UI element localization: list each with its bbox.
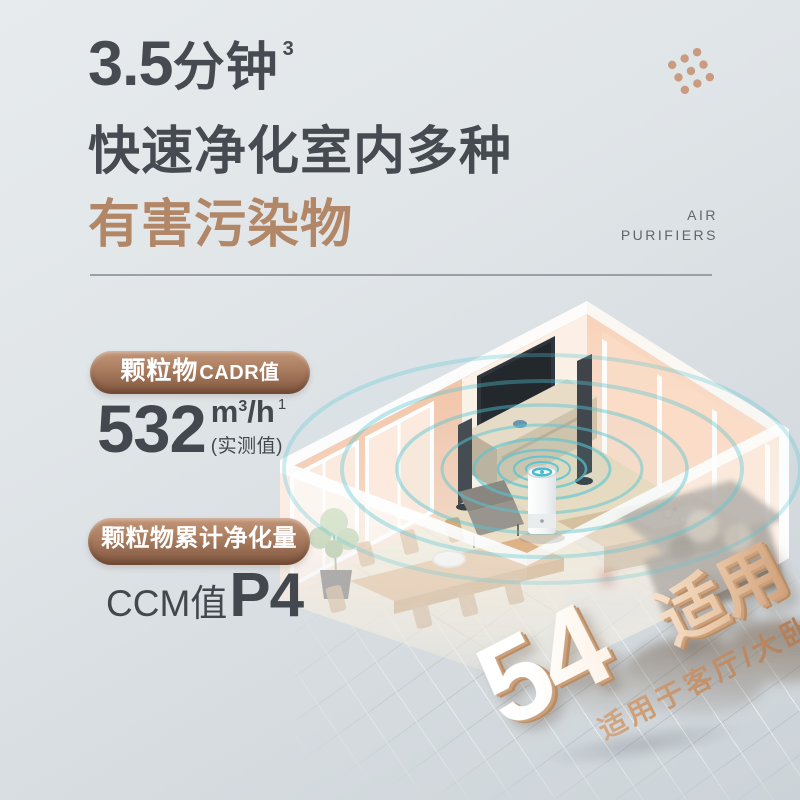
brand-label-line-2: PURIFIERS [621, 225, 718, 245]
headline-line-3: 有害污染物 [88, 189, 512, 262]
ccm-value: CCM值 P4 [106, 560, 303, 631]
product-poster: 3.5分钟3 快速净化室内多种 有害污染物 AIR PURIFIERS [0, 0, 800, 800]
headline-minutes: 分钟 [173, 39, 279, 97]
cadr-unit: m3/h1 [211, 396, 286, 427]
ccm-grade: P4 [229, 560, 303, 631]
dots-cluster-icon [668, 48, 714, 94]
headline: 3.5分钟3 快速净化室内多种 有害污染物 [88, 28, 512, 262]
headline-number: 3.5 [88, 29, 173, 99]
headline-line-1: 3.5分钟3 [88, 28, 512, 116]
cadr-unit-block: m3/h1 (实测值) [211, 396, 286, 463]
ccm-badge-main: 颗粒物累计净化量 [101, 518, 297, 553]
brand-label: AIR PURIFIERS [621, 205, 718, 245]
headline-line-2: 快速净化室内多种 [88, 116, 512, 189]
brand-label-line-1: AIR [621, 205, 718, 225]
ccm-badge: 颗粒物累计净化量 [88, 518, 310, 565]
cadr-note: (实测值) [211, 431, 286, 458]
cadr-badge-suffix: CADR值 [199, 356, 279, 385]
cadr-badge-main: 颗粒物 [120, 351, 198, 387]
ccm-label: CCM值 [106, 573, 227, 627]
cadr-number: 532 [97, 396, 206, 463]
headline-footnote-superscript: 3 [283, 38, 295, 60]
cadr-value: 532 m3/h1 (实测值) [97, 396, 286, 463]
divider-line [90, 274, 712, 276]
cadr-badge: 颗粒物 CADR值 [90, 351, 310, 394]
